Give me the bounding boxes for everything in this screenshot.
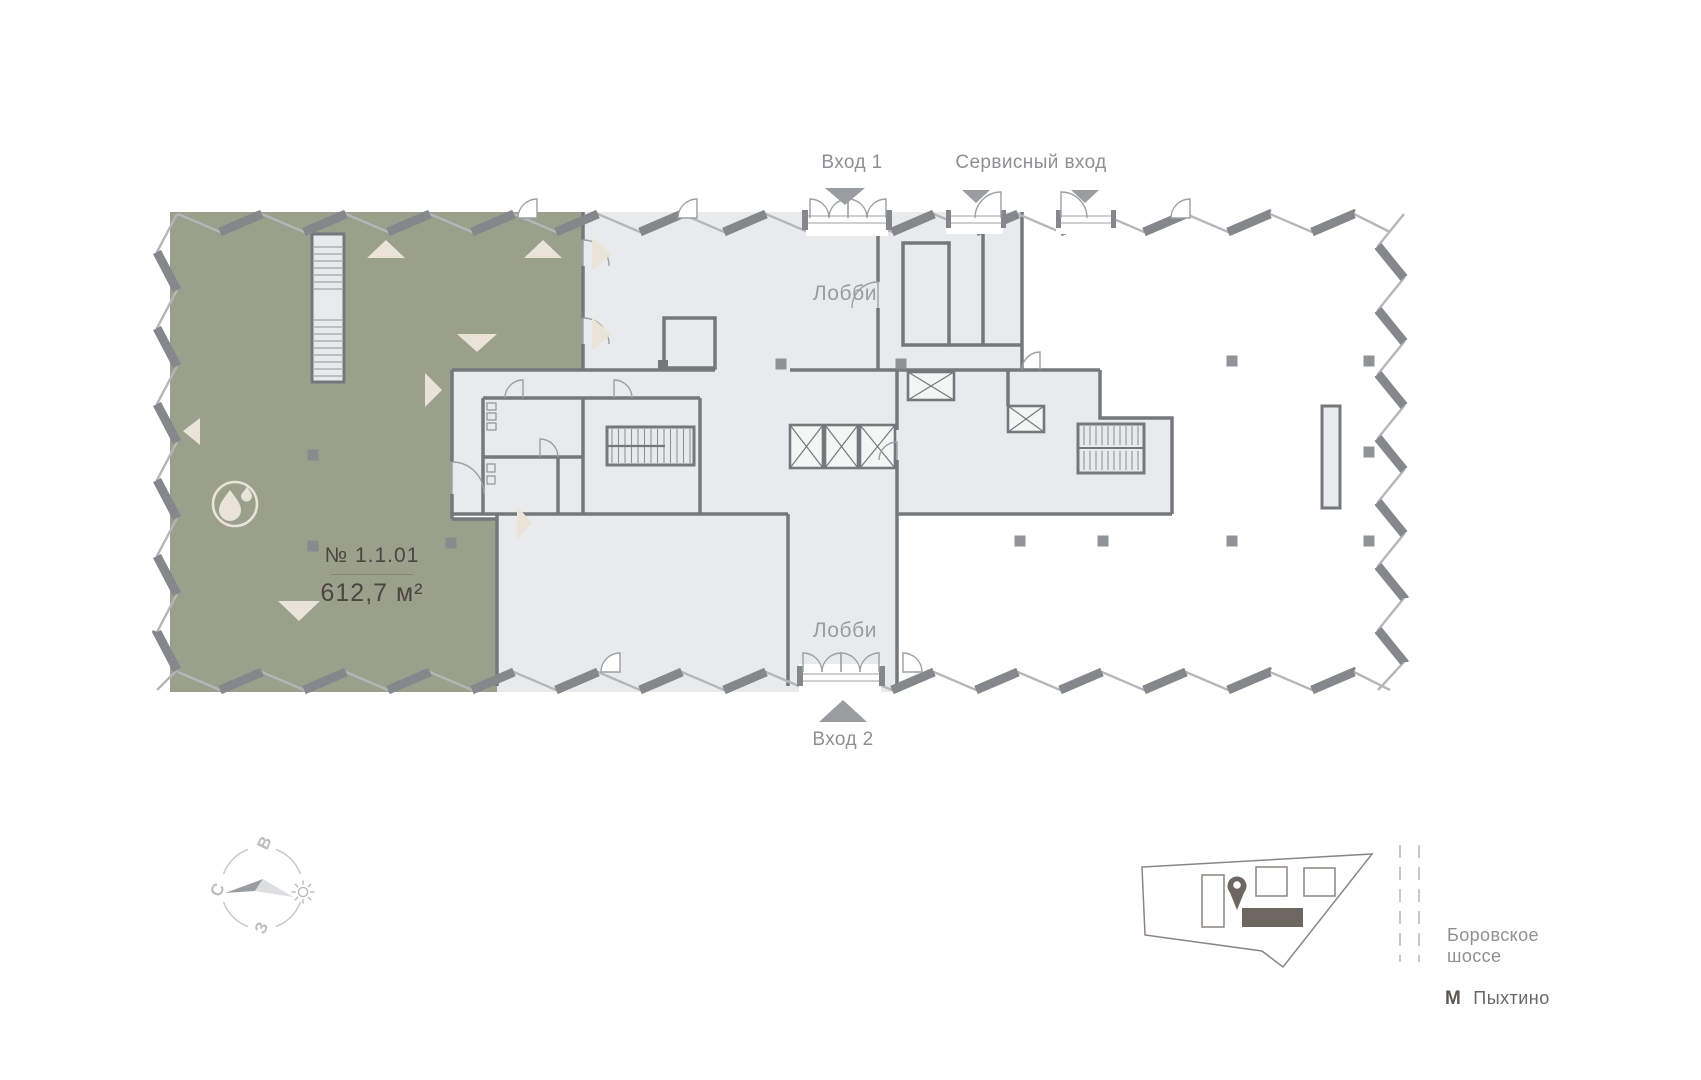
lower-room-region <box>497 514 788 692</box>
road-label: Боровское шоссе <box>1447 925 1539 967</box>
metro-station: М Пыхтино <box>1445 988 1550 1010</box>
wall-corner-block <box>658 360 668 370</box>
shaft-bar <box>1322 406 1340 508</box>
entrance2-arrow-icon <box>819 700 867 722</box>
road-label-line1: Боровское <box>1447 925 1539 946</box>
location-minimap <box>1142 845 1419 967</box>
unit-number: № 1.1.01 <box>325 544 420 568</box>
metro-name: Пыхтино <box>1473 988 1549 1008</box>
lobby-lower-label: Лобби <box>813 619 877 643</box>
entrance2-label: Вход 2 <box>812 729 873 751</box>
road-label-line2: шоссе <box>1447 946 1539 967</box>
lobby-upper-label: Лобби <box>813 282 877 306</box>
stair-unit <box>312 234 344 382</box>
minimap-current-building <box>1242 908 1303 927</box>
road-dashed-lines <box>1400 845 1419 962</box>
floor-plan-page: Вход 1 Сервисный вход Лобби Лобби Вход 2… <box>0 0 1701 1080</box>
service-entrance-label: Сервисный вход <box>955 152 1106 174</box>
unit-area: 612,7 м² <box>320 579 423 608</box>
entrance1-label: Вход 1 <box>821 152 882 174</box>
compass <box>224 850 315 927</box>
unit-divider <box>331 574 413 575</box>
metro-icon: М <box>1445 988 1461 1009</box>
sun-icon <box>292 881 315 904</box>
